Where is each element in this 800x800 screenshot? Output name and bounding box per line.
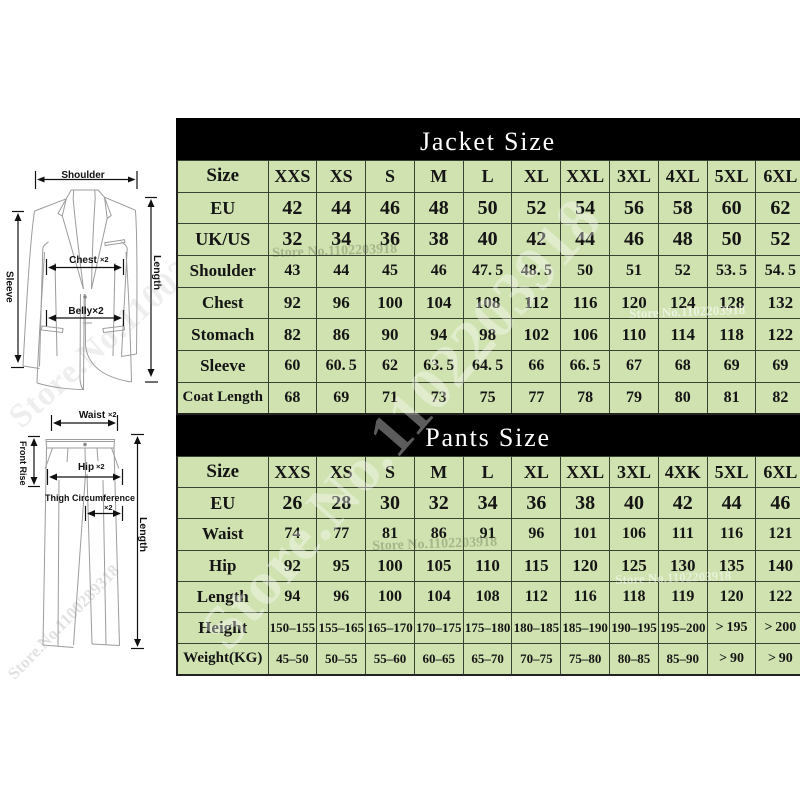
svg-text:Length: Length	[137, 517, 149, 552]
svg-text:Thigh Circumference: Thigh Circumference	[45, 493, 135, 503]
svg-text:Hip: Hip	[78, 462, 94, 473]
svg-text:×2: ×2	[104, 503, 113, 512]
svg-text:×2: ×2	[96, 462, 105, 471]
